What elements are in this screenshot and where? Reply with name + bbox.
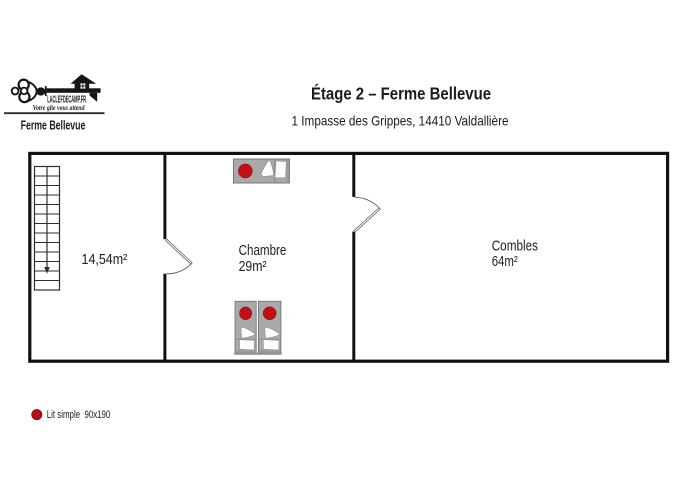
svg-text:Chambre: Chambre <box>239 243 287 259</box>
svg-text:Lit simple 90x190: Lit simple 90x190 <box>47 409 111 421</box>
svg-text:29m²: 29m² <box>239 259 267 275</box>
svg-text:1 Impasse des Grippes, 14410 V: 1 Impasse des Grippes, 14410 Valdallière <box>292 113 509 129</box>
svg-text:Ferme Bellevue: Ferme Bellevue <box>21 118 86 133</box>
svg-text:14,54m²: 14,54m² <box>82 252 128 268</box>
svg-text:64m²: 64m² <box>492 254 518 270</box>
svg-text:Combles: Combles <box>492 239 538 255</box>
svg-text:Étage 2 – Ferme Bellevue: Étage 2 – Ferme Bellevue <box>311 83 491 104</box>
svg-text:Votre gîte vous attend: Votre gîte vous attend <box>33 103 85 112</box>
